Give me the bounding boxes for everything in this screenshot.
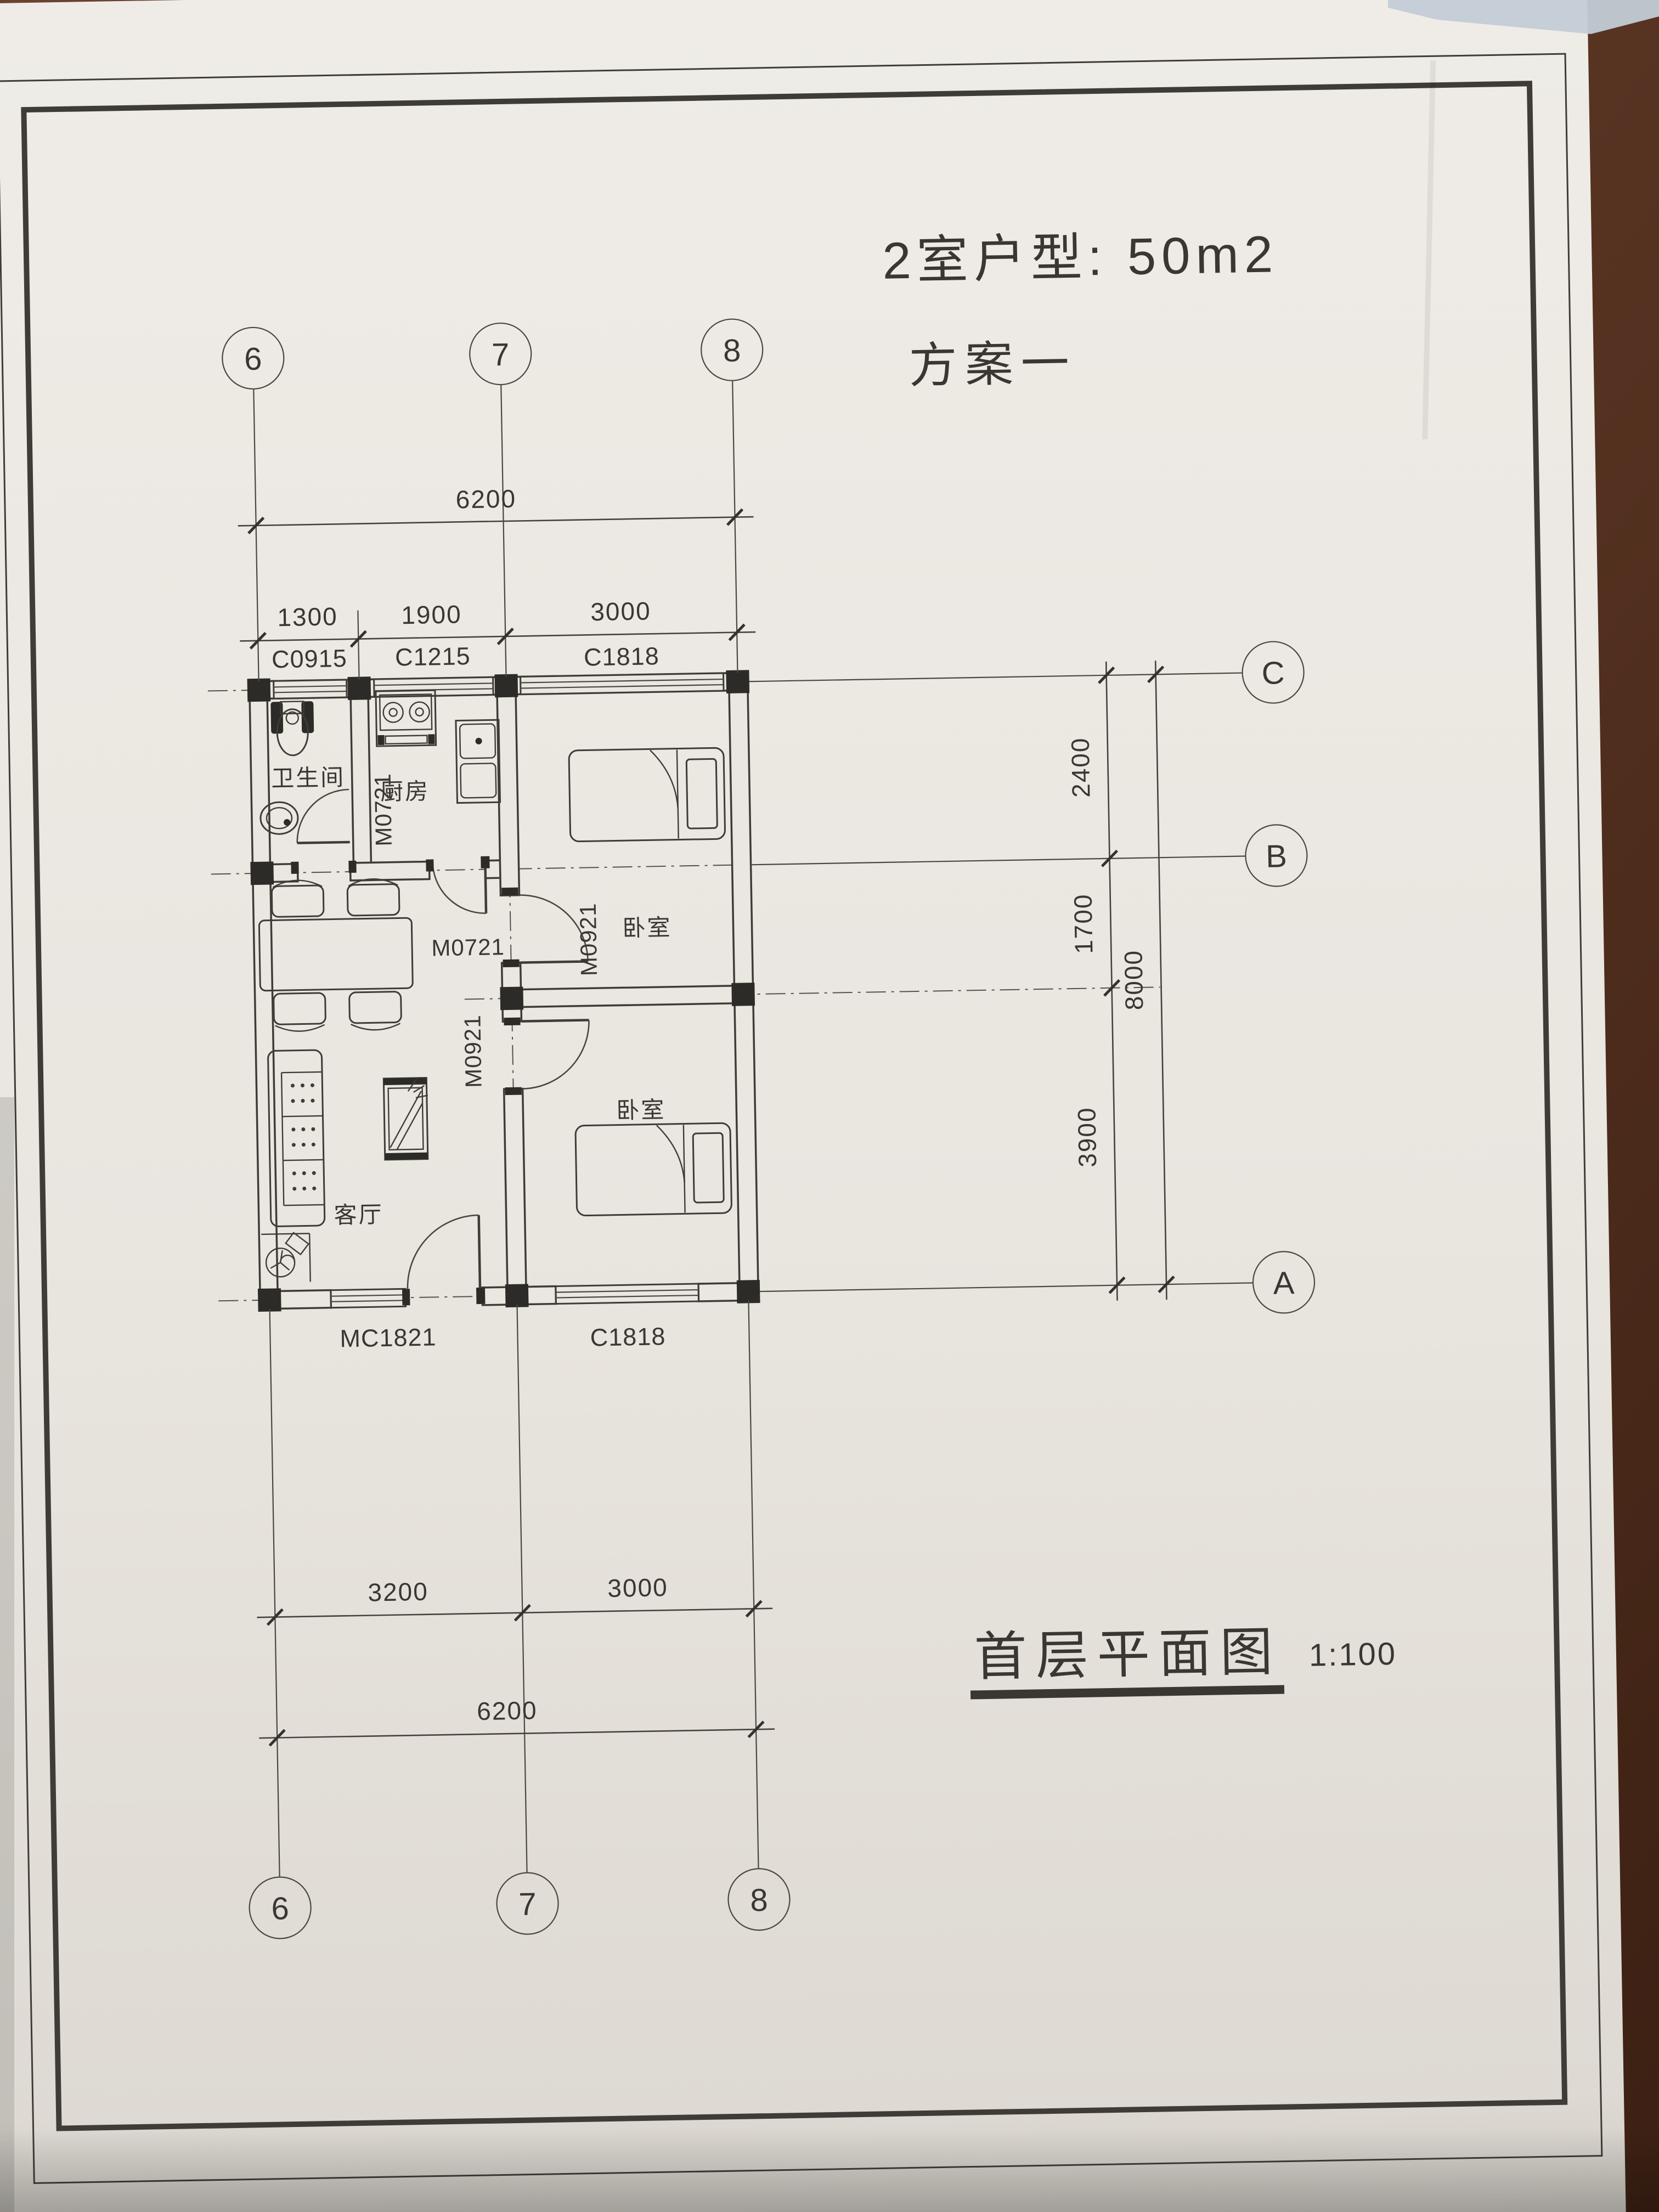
svg-text:B: B <box>1266 838 1288 874</box>
dim-right-2400: 2400 <box>1066 737 1096 798</box>
dim-top-3000: 3000 <box>590 596 651 626</box>
dim-right-3900: 3900 <box>1072 1107 1102 1167</box>
dim-right-1700: 1700 <box>1069 893 1098 954</box>
label-window-c0915: C0915 <box>272 644 347 673</box>
dim-bottom-overall: 6200 <box>477 1696 538 1725</box>
svg-text:6: 6 <box>271 1891 289 1927</box>
svg-text:A: A <box>1273 1265 1295 1301</box>
room-label-living: 客厅 <box>334 1201 383 1228</box>
svg-text:C: C <box>1261 655 1285 691</box>
photo-bottom-shadow <box>0 2129 1659 2212</box>
label-door-bedroom1: M0921 <box>575 902 602 976</box>
footer-scale: 1:100 <box>1308 1636 1397 1673</box>
photo-left-shadow <box>0 1097 14 2212</box>
svg-text:8: 8 <box>723 332 741 369</box>
footer-title: 首层平面图 <box>974 1623 1282 1687</box>
window-c0915 <box>274 680 347 698</box>
label-window-c1818-bottom: C1818 <box>590 1322 665 1351</box>
svg-text:7: 7 <box>492 337 510 373</box>
svg-text:8: 8 <box>750 1882 768 1918</box>
room-label-bedroom1: 卧室 <box>622 915 672 941</box>
dim-bottom-3000: 3000 <box>607 1573 668 1602</box>
svg-text:7: 7 <box>518 1886 537 1922</box>
window-c1818-top <box>521 673 724 694</box>
label-window-c1818-top: C1818 <box>584 642 659 671</box>
dim-top-1900: 1900 <box>401 600 462 629</box>
drawing-scheme: 方案一 <box>909 336 1077 393</box>
label-window-mc1821: MC1821 <box>340 1323 437 1352</box>
window-c1215 <box>374 677 494 697</box>
dim-top-overall: 6200 <box>455 484 516 514</box>
label-door-kitchen: M0721 <box>431 934 505 961</box>
dim-top-1300: 1300 <box>277 602 338 631</box>
window-mc1821 <box>331 1289 406 1307</box>
photo-of-floor-plan: 卫生间 厨房 卧室 卧室 客厅 C0915 C1215 C1818 MC1821… <box>0 0 1659 2212</box>
window-c1818-bottom <box>556 1284 699 1304</box>
svg-text:6: 6 <box>244 341 262 377</box>
paper-sheet <box>0 0 1627 2212</box>
dim-right-overall: 8000 <box>1119 949 1148 1010</box>
drawing-title: 2室户型: 50m2 <box>882 225 1278 290</box>
label-door-bedroom2: M0921 <box>459 1014 486 1088</box>
room-label-bedroom2: 卧室 <box>616 1097 666 1124</box>
dim-bottom-3200: 3200 <box>368 1577 428 1607</box>
label-window-c1215: C1215 <box>395 642 471 671</box>
room-label-bathroom: 卫生间 <box>271 764 346 791</box>
label-door-bath: M0721 <box>370 773 397 847</box>
